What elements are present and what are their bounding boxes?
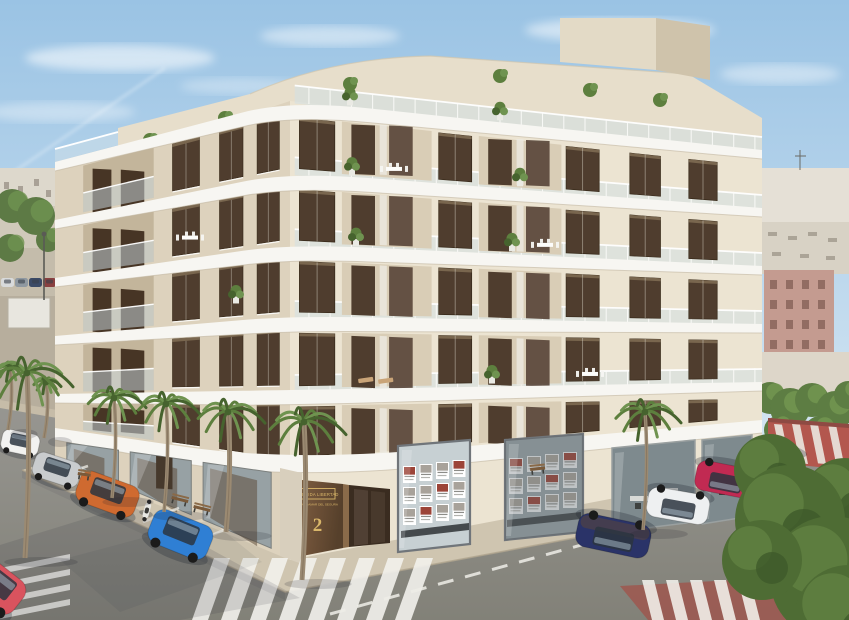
dining-set (386, 167, 402, 171)
corner-pillar (280, 468, 302, 564)
foreground-trees (722, 434, 849, 620)
listing-window-2 (505, 434, 583, 540)
cloud (25, 45, 215, 71)
office-chair (635, 503, 641, 509)
entrance-glass-door (371, 491, 385, 544)
sign-line1: AVENIDA LIBERTAD (296, 492, 338, 497)
dining-set (182, 236, 198, 240)
dining-set (582, 372, 598, 376)
kiosk (8, 298, 50, 328)
sign-number: 2 (313, 515, 323, 536)
cloud (260, 26, 400, 46)
architectural-render: AVENIDA LIBERTAD GUARDAMAR DEL SEGURA 2 (0, 0, 849, 620)
entrance-bronze-pillar (343, 484, 349, 548)
dining-set (537, 243, 553, 247)
render-scene: AVENIDA LIBERTAD GUARDAMAR DEL SEGURA 2 (0, 0, 849, 620)
entrance-glass-door (354, 489, 368, 546)
background-building (762, 222, 849, 274)
listing-window-1 (398, 440, 470, 552)
shop-door (156, 456, 172, 490)
background-building (762, 168, 849, 224)
cloud (720, 64, 840, 84)
